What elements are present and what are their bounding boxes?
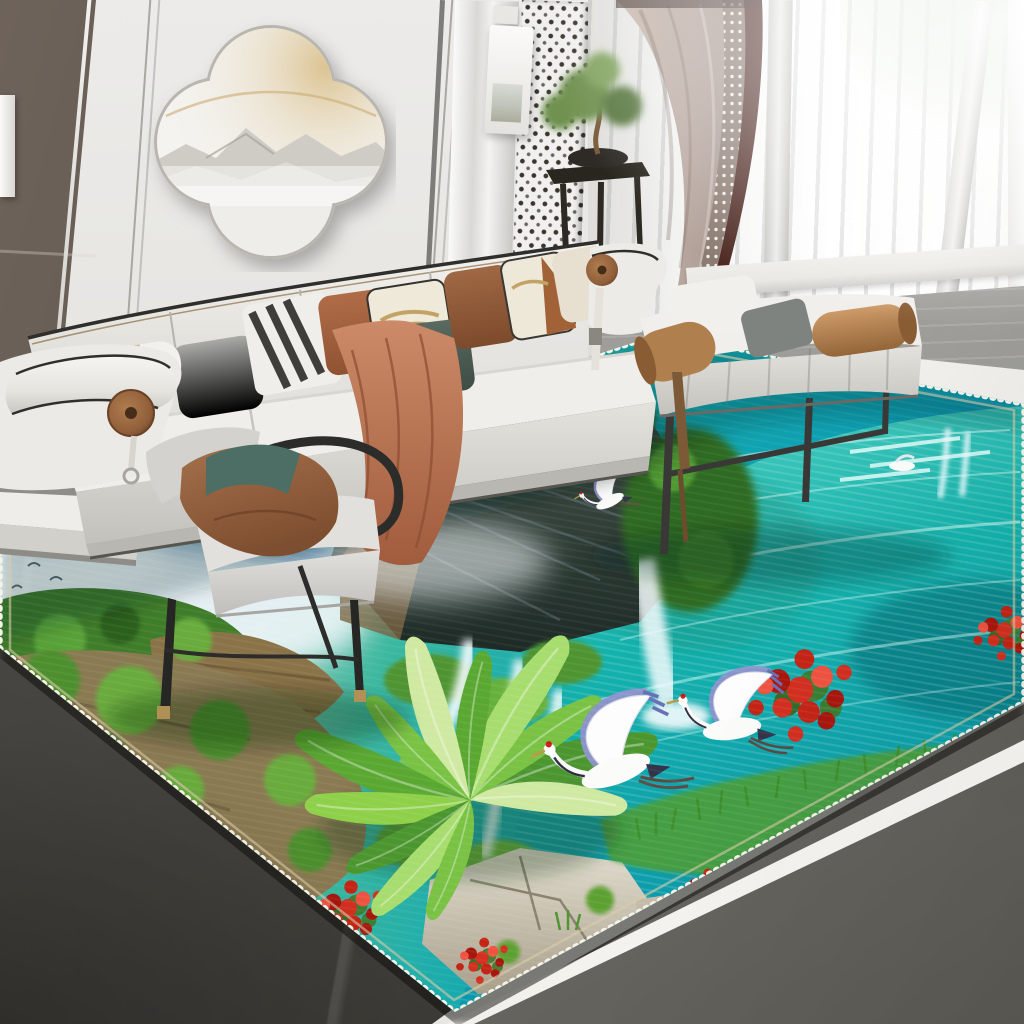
bench-stretcher xyxy=(664,428,886,478)
bonsai-plant xyxy=(542,52,642,168)
furniture-layer xyxy=(0,0,1024,1024)
living-room-scene xyxy=(0,0,1024,1024)
bench-shadow xyxy=(590,528,950,584)
